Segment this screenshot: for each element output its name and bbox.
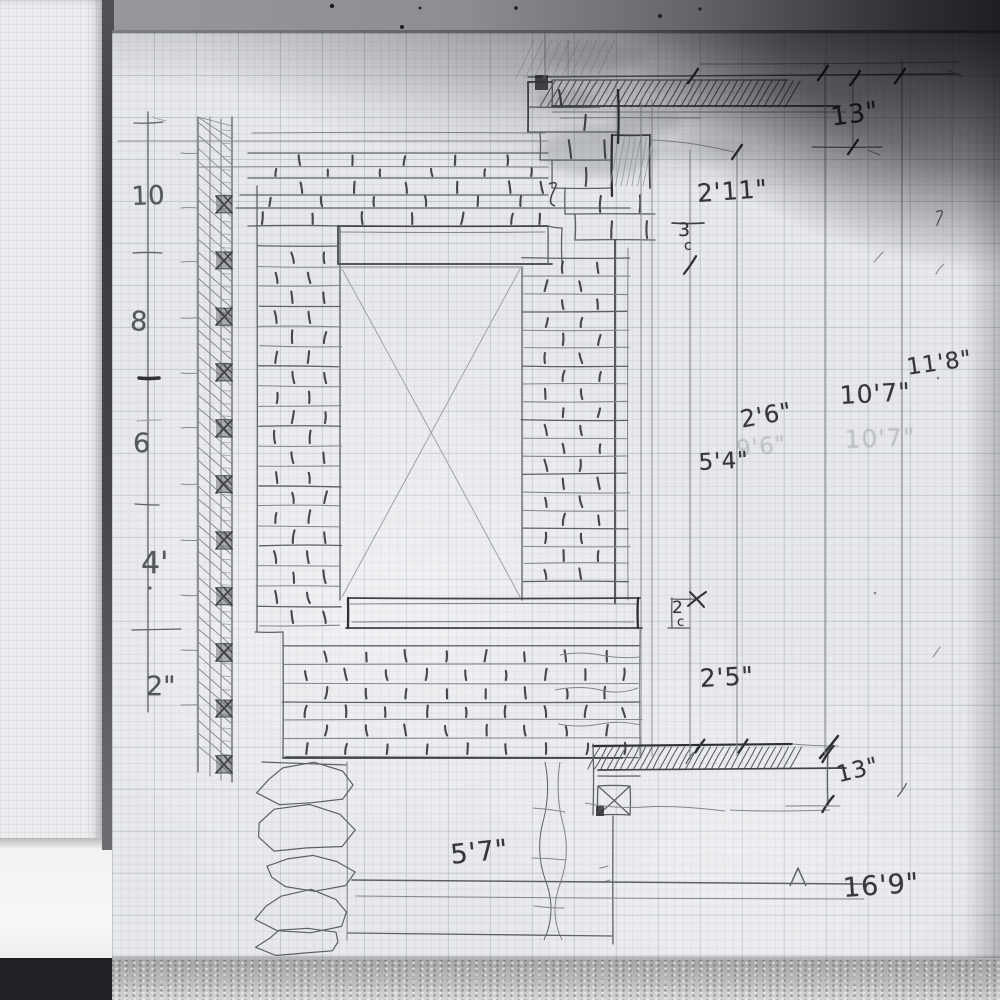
- background-surface: [100, 0, 1000, 33]
- left-graph-sheet: [0, 0, 104, 845]
- left-sheet-lower-edge: [0, 838, 113, 964]
- graph-pad: [112, 30, 1000, 961]
- table-surface: [112, 960, 1000, 1000]
- photo-of-sketch: 10 8 6 4' 2" 13" 2'11" 3 c 2'6" 9'6" 5'4…: [0, 0, 1000, 1000]
- shadow-bottom-left: [0, 958, 121, 1000]
